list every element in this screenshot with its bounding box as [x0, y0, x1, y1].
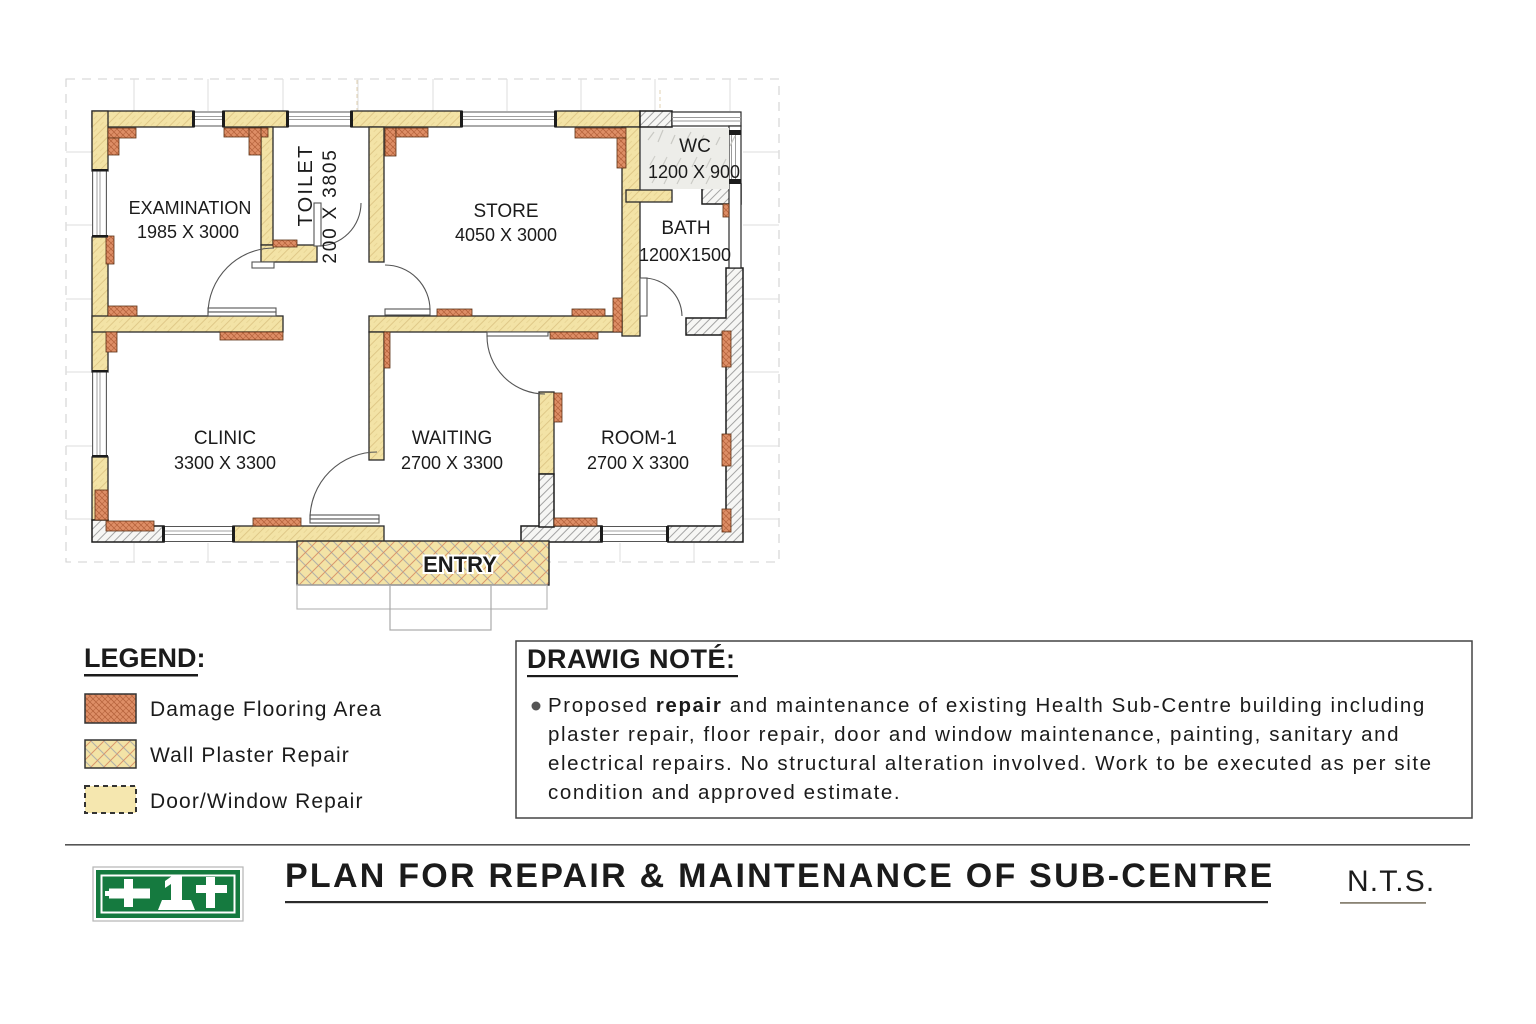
svg-text:EXAMINATION: EXAMINATION [129, 198, 252, 218]
svg-text:Door/Window Repair: Door/Window Repair [150, 790, 364, 813]
svg-text:3300 X 3300: 3300 X 3300 [174, 453, 276, 473]
svg-text:Damage Flooring Area: Damage Flooring Area [150, 698, 382, 721]
svg-text:ENTRY: ENTRY [423, 552, 497, 577]
svg-text:condition and approved estimat: condition and approved estimate. [548, 781, 901, 804]
svg-text:plaster repair, floor repair,: plaster repair, floor repair, door and w… [548, 723, 1400, 746]
svg-text:BATH: BATH [661, 218, 710, 239]
svg-text:STORE: STORE [473, 201, 538, 222]
svg-text:TOILET: TOILET [295, 144, 317, 227]
svg-text:200 X 3805: 200 X 3805 [320, 148, 341, 263]
svg-text:LEGEND:: LEGEND: [84, 643, 206, 673]
svg-text:DRAWIG NOTÉ:: DRAWIG NOTÉ: [527, 643, 736, 674]
svg-text:PLAN FOR REPAIR & MAINTENANCE: PLAN FOR REPAIR & MAINTENANCE OF SUB-CEN… [285, 857, 1275, 895]
svg-text:WC: WC [679, 136, 711, 157]
svg-text:4050 X 3000: 4050 X 3000 [455, 225, 557, 245]
svg-text:Wall Plaster Repair: Wall Plaster Repair [150, 744, 350, 767]
svg-text:electrical repairs. No structu: electrical repairs. No structural altera… [548, 752, 1433, 775]
svg-text:N.T.S.: N.T.S. [1347, 865, 1435, 898]
svg-text:1200 X 900: 1200 X 900 [648, 162, 740, 182]
svg-text:CLINIC: CLINIC [194, 428, 256, 449]
svg-text:1200X1500: 1200X1500 [639, 245, 731, 265]
svg-text:Proposed repair and maintenan: Proposed repair and maintenance of exist… [548, 694, 1426, 717]
svg-text:ROOM-1: ROOM-1 [601, 428, 677, 449]
svg-text:1985 X 3000: 1985 X 3000 [137, 222, 239, 242]
svg-text:2700 X 3300: 2700 X 3300 [401, 453, 503, 473]
svg-text:2700 X 3300: 2700 X 3300 [587, 453, 689, 473]
svg-text:WAITING: WAITING [412, 428, 493, 449]
